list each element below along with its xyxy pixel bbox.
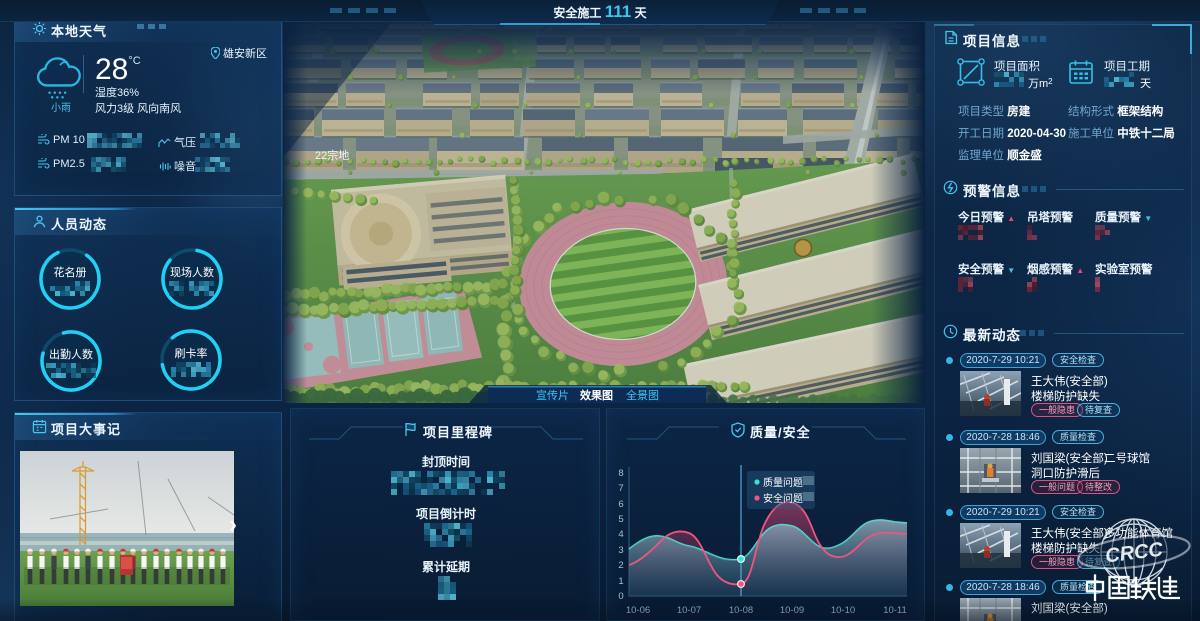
svg-text:10-07: 10-07 bbox=[677, 605, 701, 616]
svg-text:效果图: 效果图 bbox=[580, 388, 613, 402]
svg-text:8: 8 bbox=[618, 468, 623, 479]
svg-text:4: 4 bbox=[618, 529, 623, 540]
svg-text:10-10: 10-10 bbox=[831, 605, 855, 616]
svg-text:10-06: 10-06 bbox=[626, 605, 650, 616]
svg-text:2: 2 bbox=[618, 560, 623, 571]
svg-text:22宗地: 22宗地 bbox=[315, 148, 349, 162]
svg-text:10-08: 10-08 bbox=[729, 605, 753, 616]
svg-text:宣传片: 宣传片 bbox=[536, 388, 569, 402]
svg-text:质量问题: 质量问题 bbox=[763, 476, 803, 489]
svg-text:10-11: 10-11 bbox=[883, 605, 907, 616]
svg-text:全景图: 全景图 bbox=[626, 388, 659, 402]
svg-text:0: 0 bbox=[618, 591, 623, 602]
svg-text:7: 7 bbox=[618, 483, 623, 494]
svg-text:3: 3 bbox=[618, 545, 623, 556]
svg-text:1: 1 bbox=[618, 576, 623, 587]
svg-text:10-09: 10-09 bbox=[780, 605, 804, 616]
svg-text:5: 5 bbox=[618, 514, 623, 525]
svg-text:6: 6 bbox=[618, 499, 623, 510]
svg-text:安全问题: 安全问题 bbox=[763, 492, 803, 505]
